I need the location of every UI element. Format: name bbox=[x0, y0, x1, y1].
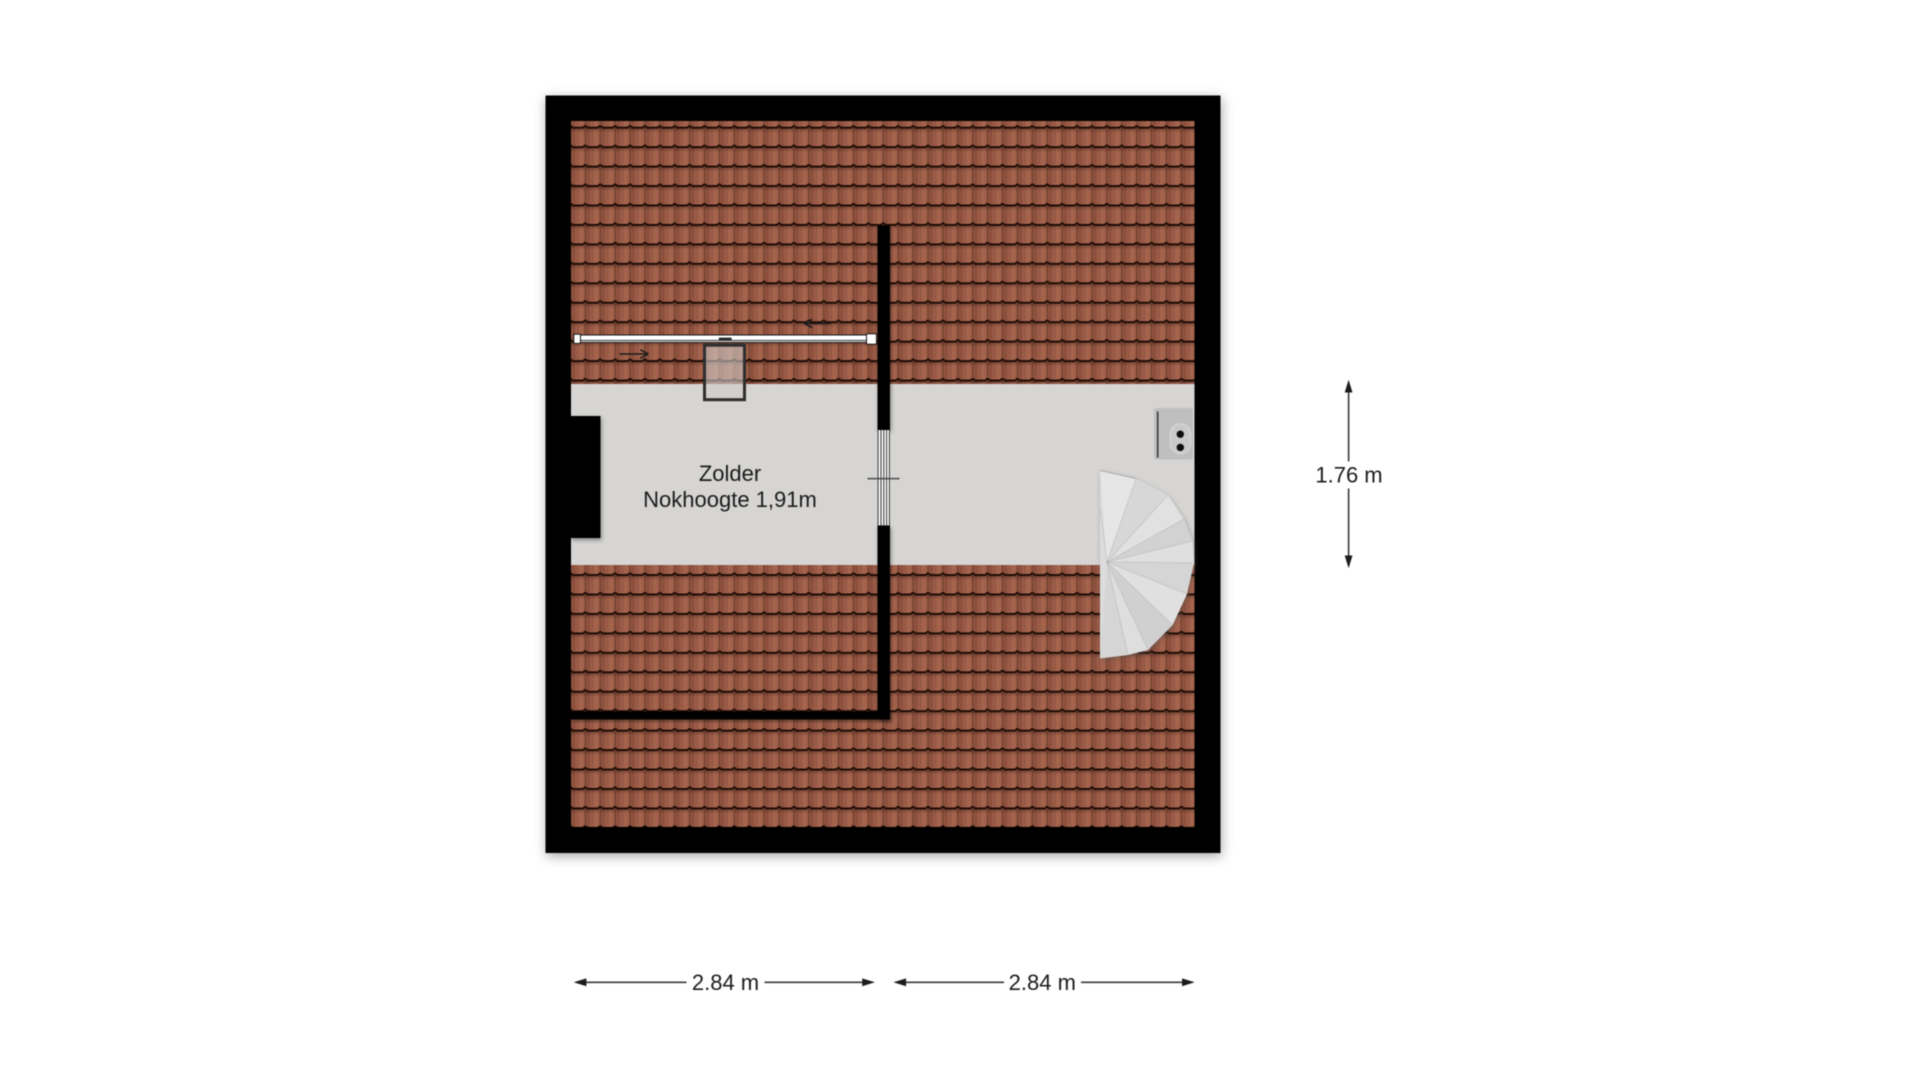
svg-text:1.76 m: 1.76 m bbox=[1315, 463, 1382, 488]
svg-text:2.84 m: 2.84 m bbox=[692, 970, 759, 995]
svg-text:Nokhoogte 1,91m: Nokhoogte 1,91m bbox=[643, 487, 817, 512]
svg-text:2.84 m: 2.84 m bbox=[1009, 970, 1076, 995]
svg-text:Zolder: Zolder bbox=[699, 461, 761, 486]
